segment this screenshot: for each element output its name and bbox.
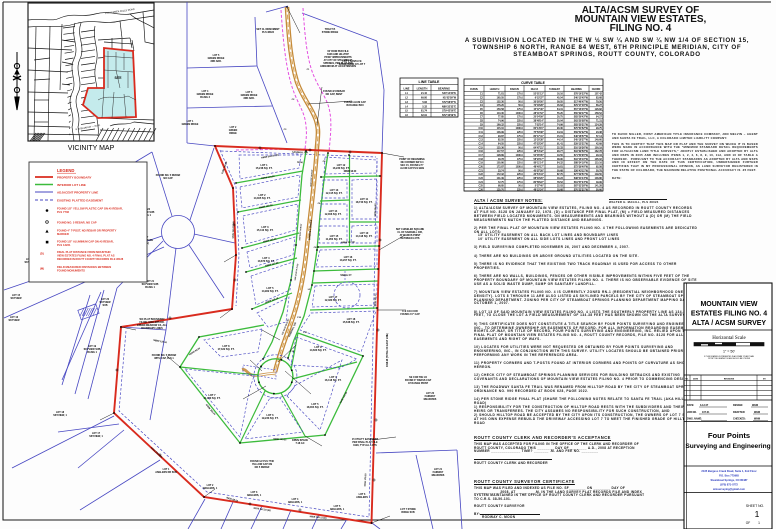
svg-text:21,480 SQ. FT.: 21,480 SQ. FT.	[204, 397, 221, 400]
svg-text:SABLE CT: SABLE CT	[340, 274, 352, 277]
svg-text:S57°16'45"W: S57°16'45"W	[574, 108, 589, 111]
svg-text:NO 5 REBAR: NO 5 REBAR	[255, 466, 270, 469]
svg-text:3RD ADD.: 3RD ADD.	[210, 60, 222, 63]
svg-text:FINAL PLAT DISTANCE FROM MOUNT: FINAL PLAT DISTANCE FROM MOUNTAIN	[57, 250, 110, 254]
svg-text:162.78: 162.78	[595, 151, 603, 153]
svg-text:172.32: 172.32	[497, 174, 505, 176]
svg-text:S77°29'51"W: S77°29'51"W	[574, 174, 589, 176]
svg-text:3-12-07: 3-12-07	[700, 404, 709, 407]
svg-text:136.99: 136.99	[497, 132, 505, 134]
svg-text:34.19: 34.19	[557, 131, 564, 134]
svg-text:N88E 150.21: N88E 150.21	[273, 439, 287, 442]
svg-text:C14: C14	[479, 143, 484, 146]
svg-text:C11: C11	[303, 332, 308, 334]
svg-text:S40E 132.00: S40E 132.00	[339, 391, 348, 404]
svg-text:S09°12'40"W 70.22': S09°12'40"W 70.22'	[294, 263, 300, 281]
svg-text:32.03: 32.03	[557, 186, 564, 188]
svg-text:45.63: 45.63	[557, 104, 564, 107]
svg-text:GREEN RIDGE: GREEN RIDGE	[182, 123, 199, 126]
svg-text:325.0: 325.0	[517, 144, 524, 146]
svg-text:18,004 SQ. FT.: 18,004 SQ. FT.	[307, 406, 324, 409]
svg-text:1030.0: 1030.0	[516, 167, 524, 169]
svg-text:15,648 SQ. FT.: 15,648 SQ. FT.	[343, 321, 360, 324]
svg-text:S02E 243.71 (M): S02E 243.71 (M)	[232, 221, 236, 238]
svg-text:LENGTH: LENGTH	[417, 86, 428, 90]
svg-text:44.14: 44.14	[557, 139, 564, 142]
svg-text:N82W 122.61: N82W 122.61	[263, 238, 278, 243]
svg-text:64°47'21": 64°47'21"	[533, 146, 543, 149]
svg-text:N88W 264.10 (D): N88W 264.10 (D)	[261, 153, 279, 159]
svg-text:45°57'26": 45°57'26"	[533, 169, 543, 172]
svg-text:225.0: 225.0	[517, 178, 524, 180]
svg-text:13,207 SQ. FT.: 13,207 SQ. FT.	[340, 259, 357, 262]
svg-text:DWG. NAME:: DWG. NAME:	[687, 418, 702, 421]
svg-text:ADJACENT PROPERTY LINE: ADJACENT PROPERTY LINE	[57, 191, 98, 195]
svg-text:C10: C10	[297, 317, 302, 319]
svg-text:N76W 110.18: N76W 110.18	[265, 297, 279, 304]
svg-text:92.58: 92.58	[596, 167, 603, 169]
svg-text:69.80: 69.80	[421, 96, 428, 99]
svg-text:42.69: 42.69	[596, 143, 603, 146]
svg-text:INTERIOR LOT LINE: INTERIOR LOT LINE	[57, 183, 86, 187]
svg-text:1030.0: 1030.0	[516, 128, 524, 130]
svg-text:52°35'35": 52°35'35"	[533, 155, 543, 157]
svg-text:5°27'40": 5°27'40"	[535, 185, 544, 188]
svg-text:135.70: 135.70	[497, 190, 505, 192]
svg-text:225.0: 225.0	[517, 132, 524, 134]
svg-text:71.31: 71.31	[596, 121, 603, 123]
svg-text:8128, TYP ALL LOTS: 8128, TYP ALL LOTS	[353, 444, 377, 447]
svg-text:13,870 SQ. FT.: 13,870 SQ. FT.	[258, 260, 275, 263]
svg-text:C23: C23	[479, 178, 484, 180]
svg-text:25°54'59": 25°54'59"	[533, 116, 543, 119]
svg-text:SKYVIEW, 1: SKYVIEW, 1	[89, 435, 103, 438]
svg-text:S72°08'37"E: S72°08'37"E	[442, 101, 456, 104]
svg-text:71.81: 71.81	[498, 94, 505, 96]
svg-text:FOUND 4" T-POST, NO REBAR OR P: FOUND 4" T-POST, NO REBAR OR PROPERTY	[57, 229, 117, 233]
svg-text:83.68: 83.68	[596, 98, 603, 100]
svg-text:128.89: 128.89	[497, 155, 505, 157]
svg-text:S40°14'20"E: S40°14'20"E	[442, 92, 456, 95]
svg-text:S72°39'40"W: S72°39'40"W	[574, 166, 589, 169]
svg-text:S30°43'11"W: S30°43'11"W	[574, 169, 589, 172]
svg-text:93.87: 93.87	[498, 136, 505, 138]
svg-text:LINE TABLE: LINE TABLE	[419, 80, 440, 84]
svg-text:Horizontal Scale: Horizontal Scale	[712, 336, 746, 341]
svg-text:30.78: 30.78	[498, 159, 505, 161]
svg-text:32.33: 32.33	[557, 147, 564, 149]
svg-text:7°52'14": 7°52'14"	[535, 123, 544, 126]
svg-text:21.10: 21.10	[421, 92, 428, 95]
svg-text:FILING 3: FILING 3	[200, 96, 210, 99]
svg-text:NO CAP, BENT: NO CAP, BENT	[326, 93, 343, 96]
svg-text:100.19: 100.19	[595, 147, 603, 149]
svg-text:C18: C18	[479, 159, 484, 161]
svg-text:12,480 SQ. FT.: 12,480 SQ. FT.	[325, 299, 342, 302]
svg-text:15,110 SQ. FT.: 15,110 SQ. FT.	[257, 229, 274, 232]
svg-text:90.30: 90.30	[557, 128, 564, 130]
svg-text:7.18 AC: 7.18 AC	[295, 442, 304, 445]
svg-text:40.23: 40.23	[557, 177, 564, 180]
svg-text:175.0: 175.0	[517, 136, 524, 138]
svg-text:5.32: 5.32	[422, 105, 427, 108]
svg-text:15°47'46": 15°47'46"	[533, 108, 543, 111]
svg-text:60.00: 60.00	[297, 162, 304, 165]
svg-text:LEGEND: LEGEND	[57, 168, 74, 173]
svg-text:80°11'14": 80°11'14"	[534, 162, 544, 165]
svg-text:2135 Burgess Creek Road, Suite: 2135 Burgess Creek Road, Suite 1, 2nd Fl…	[701, 469, 756, 473]
svg-text:SKYVIEW, 1: SKYVIEW, 1	[53, 414, 67, 417]
svg-text:94.27: 94.27	[596, 116, 603, 119]
svg-text:18,740 SQ. FT.: 18,740 SQ. FT.	[356, 201, 373, 204]
svg-text:32.91: 32.91	[421, 114, 428, 117]
svg-text:S01E 176.03: S01E 176.03	[365, 473, 368, 487]
svg-text:45.54: 45.54	[557, 97, 564, 100]
svg-text:S63°20'58"W: S63°20'58"W	[574, 121, 589, 123]
svg-text:C17: C17	[479, 155, 484, 157]
svg-text:S79°17'46"W: S79°17'46"W	[574, 104, 589, 107]
svg-text:165.55: 165.55	[497, 98, 505, 100]
svg-text:S70°54'52"W: S70°54'52"W	[574, 127, 589, 130]
svg-text:C26: C26	[479, 190, 484, 192]
svg-text:S71°50'35"W: S71°50'35"W	[574, 155, 589, 157]
svg-text:CURVE TABLE: CURVE TABLE	[521, 81, 546, 85]
svg-text:176.20: 176.20	[497, 105, 505, 107]
svg-text:ANGLERS DR SUB: ANGLERS DR SUB	[155, 471, 177, 474]
svg-text:C15: C15	[479, 147, 484, 149]
svg-text:64.55: 64.55	[498, 143, 505, 146]
svg-text:325.0: 325.0	[517, 121, 524, 123]
svg-text:12°20'38": 12°20'38"	[533, 140, 543, 142]
svg-text:STONE RIDGE: STONE RIDGE	[322, 31, 339, 34]
svg-text:S10°19'36"W: S10°19'36"W	[574, 147, 589, 149]
svg-text:SHEET NO.: SHEET NO.	[746, 504, 764, 508]
svg-text:S50°39'47"W: S50°39'47"W	[574, 112, 589, 115]
svg-text:DATE:: DATE:	[687, 404, 694, 407]
svg-text:SKYVIEW: SKYVIEW	[8, 319, 20, 322]
svg-text:LINE: LINE	[404, 86, 410, 90]
svg-text:149.60: 149.60	[595, 139, 603, 142]
svg-text:N83W 118.20: N83W 118.20	[261, 176, 276, 180]
svg-text:MOUNTAIN VIEW: MOUNTAIN VIEW	[700, 301, 757, 308]
svg-text:WHM: WHM	[754, 411, 760, 414]
svg-text:EXISTING PLATTED EASEMENT: EXISTING PLATTED EASEMENT	[57, 199, 103, 203]
svg-text:MARKER: MARKER	[57, 232, 69, 236]
svg-text:NO CAP: NO CAP	[163, 177, 173, 180]
svg-text:75°53'38": 75°53'38"	[533, 132, 543, 134]
svg-text:S78°16'33"W: S78°16'33"W	[574, 94, 589, 96]
svg-text:3RD ADD.: 3RD ADD.	[243, 97, 255, 100]
svg-text:107.42: 107.42	[595, 93, 603, 96]
svg-text:(970) 871-0772: (970) 871-0772	[720, 483, 738, 487]
svg-text:29.75: 29.75	[596, 128, 603, 130]
svg-text:225.0: 225.0	[517, 190, 524, 192]
svg-text:(D): (D)	[40, 252, 44, 256]
svg-text:OF: OF	[746, 521, 750, 525]
svg-text:15.01: 15.01	[557, 136, 564, 138]
svg-text:Steamboat Springs, CO 80487: Steamboat Springs, CO 80487	[711, 478, 748, 482]
svg-text:RADIUS: RADIUS	[510, 88, 519, 91]
svg-text:N85E 120.11 (D): N85E 120.11 (D)	[310, 516, 327, 520]
svg-text:ANGLERS, 1: ANGLERS, 1	[330, 508, 345, 511]
svg-text:FOUND MONUMENTS: FOUND MONUMENTS	[57, 269, 85, 273]
svg-text:WHM: WHM	[754, 418, 760, 421]
svg-text:28°41'53": 28°41'53"	[533, 112, 543, 115]
svg-text:17,322 SQ. FT.: 17,322 SQ. FT.	[218, 348, 235, 351]
svg-text:14,305 SQ. FT.: 14,305 SQ. FT.	[254, 197, 271, 200]
svg-text:S46°18'57"W: S46°18'57"W	[574, 135, 589, 138]
svg-text:72.75: 72.75	[498, 182, 505, 184]
svg-text:RIDGE SUB: RIDGE SUB	[401, 511, 415, 514]
svg-text:C25: C25	[479, 186, 484, 188]
svg-text:S38°44'44"W: S38°44'44"W	[574, 177, 589, 180]
svg-text:S00E 254.00: S00E 254.00	[374, 203, 377, 217]
svg-text:ALUM CAP PLS 9999: ALUM CAP PLS 9999	[400, 167, 425, 170]
svg-text:Four Points: Four Points	[708, 431, 750, 440]
svg-text:175.0: 175.0	[517, 117, 524, 119]
svg-text:S70°22'31"W: S70°22'31"W	[574, 190, 589, 192]
svg-text:TANGENT: TANGENT	[549, 88, 561, 91]
svg-text:C3: C3	[284, 129, 288, 131]
svg-text:57.14: 57.14	[596, 135, 603, 138]
svg-text:48°40'17": 48°40'17"	[533, 166, 543, 169]
svg-text:MEADOWS: MEADOWS	[424, 398, 437, 401]
svg-text:WHM: WHM	[752, 404, 758, 407]
svg-text:BEARING: BEARING	[571, 88, 582, 91]
svg-text:23.38: 23.38	[596, 132, 603, 134]
svg-text:52°51'13": 52°51'13"	[533, 94, 543, 96]
svg-text:225.0: 225.0	[517, 174, 524, 176]
svg-text:50.0: 50.0	[518, 186, 523, 188]
svg-text:48°15'24": 48°15'24"	[533, 189, 543, 192]
svg-text:FOUND 1/2" YELLOW PLASTIC CAP: FOUND 1/2" YELLOW PLASTIC CAP ON #5 REBA…	[57, 207, 123, 211]
svg-text:PLS 38024: PLS 38024	[262, 31, 275, 34]
svg-text:16.16: 16.16	[557, 94, 564, 96]
svg-text:S83°30'31"W: S83°30'31"W	[574, 124, 589, 126]
svg-text:30°50'50": 30°50'50"	[533, 101, 543, 103]
svg-text:59.55: 59.55	[557, 101, 564, 103]
svg-text:(M): (M)	[40, 267, 44, 271]
svg-text:SITE: SITE	[114, 76, 121, 80]
svg-text:20.04: 20.04	[557, 120, 564, 123]
svg-text:FILING 1: FILING 1	[145, 286, 155, 289]
svg-text:18.68: 18.68	[557, 190, 564, 192]
svg-text:PROPERTY BOUNDARY: PROPERTY BOUNDARY	[57, 176, 92, 180]
svg-text:C2: C2	[292, 99, 296, 101]
svg-text:73°18'28": 73°18'28"	[533, 105, 543, 107]
svg-text:91.41: 91.41	[557, 143, 564, 146]
svg-text:49.99: 49.99	[596, 181, 603, 184]
svg-text:CHORD: CHORD	[592, 89, 601, 91]
svg-text:152.30: 152.30	[497, 101, 505, 103]
svg-text:149.50: 149.50	[595, 173, 603, 176]
svg-text:158.52: 158.52	[595, 113, 603, 115]
svg-text:N89W 117.00: N89W 117.00	[341, 242, 355, 245]
svg-text:81.74: 81.74	[421, 110, 428, 113]
svg-text:24"X36" THE GRAPHIC SCALE SHOU: 24"X36" THE GRAPHIC SCALE SHOULD BE UTIL…	[708, 357, 751, 360]
svg-text:LENGTH: LENGTH	[490, 89, 500, 91]
svg-text:C20: C20	[479, 167, 484, 169]
svg-text:79.50: 79.50	[596, 101, 603, 103]
svg-text:S79°42'56"E: S79°42'56"E	[442, 110, 456, 113]
svg-text:14,962 SQ. FT.: 14,962 SQ. FT.	[262, 290, 279, 293]
svg-text:FIELD MEASURED DISTANCES BETWE: FIELD MEASURED DISTANCES BETWEEN	[57, 265, 111, 269]
svg-text:S16°16'10"W: S16°16'10"W	[574, 159, 589, 161]
svg-text:47°53'34": 47°53'34"	[533, 143, 543, 146]
svg-text:58°20'17": 58°20'17"	[533, 159, 543, 161]
svg-text:S16°39'59"W: S16°39'59"W	[574, 151, 589, 153]
svg-text:18°54'42": 18°54'42"	[533, 150, 543, 153]
svg-text:78.52: 78.52	[557, 182, 564, 184]
svg-text:66.27: 66.27	[596, 105, 603, 107]
svg-text:19,233 SQ. FT.: 19,233 SQ. FT.	[262, 417, 279, 420]
svg-text:98.85: 98.85	[498, 186, 505, 188]
svg-text:FOUND 2.5" CAP: FOUND 2.5" CAP	[400, 313, 420, 316]
svg-text:1030.0: 1030.0	[516, 113, 524, 115]
svg-text:50.78: 50.78	[596, 170, 603, 172]
svg-text:107-01: 107-01	[702, 411, 710, 414]
svg-text:1698.98 (TOTAL OF EAST LINE): 1698.98 (TOTAL OF EAST LINE)	[386, 333, 389, 367]
svg-text:CHECKED:: CHECKED:	[733, 418, 746, 421]
svg-text:1: 1	[755, 509, 760, 519]
svg-text:172.87: 172.87	[497, 167, 505, 169]
svg-text:33.74: 33.74	[498, 169, 505, 172]
svg-text:DELTA: DELTA	[531, 88, 539, 91]
svg-text:PLS 13221: PLS 13221	[57, 243, 71, 247]
svg-text:12,006 SQ. FT.: 12,006 SQ. FT.	[325, 213, 342, 216]
svg-text:16,118 SQ. FT.: 16,118 SQ. FT.	[325, 379, 342, 382]
svg-text:124.29: 124.29	[595, 123, 603, 126]
svg-text:ANGLERS, 1: ANGLERS, 1	[247, 494, 262, 497]
svg-text:5.82: 5.82	[422, 101, 427, 104]
svg-text:ANGLERS, 1: ANGLERS, 1	[288, 501, 303, 504]
svg-text:BETWEEN LOTS: BETWEEN LOTS	[401, 237, 420, 240]
svg-text:80°17'41": 80°17'41"	[533, 135, 543, 138]
svg-text:N89W 90.00: N89W 90.00	[344, 171, 357, 173]
svg-text:PLS 7736: PLS 7736	[57, 210, 69, 214]
svg-text:225.0: 225.0	[517, 151, 524, 153]
svg-text:84.32: 84.32	[557, 162, 564, 165]
svg-text:115.10: 115.10	[497, 128, 505, 130]
svg-text:S61°57'24"W: S61°57'24"W	[574, 181, 589, 184]
svg-text:110.30: 110.30	[497, 113, 505, 115]
svg-text:19.81: 19.81	[557, 167, 564, 169]
svg-text:RIDGE: RIDGE	[229, 132, 237, 135]
svg-text:38.90: 38.90	[557, 159, 564, 161]
svg-text:ANGLERS: ANGLERS	[356, 496, 368, 499]
svg-text:14,118 SQ. FT.: 14,118 SQ. FT.	[356, 235, 373, 238]
svg-text:90.77: 90.77	[557, 151, 564, 153]
svg-text:126.82: 126.82	[595, 109, 603, 111]
svg-text:CURVE: CURVE	[470, 89, 479, 91]
svg-text:30.75: 30.75	[557, 117, 564, 119]
svg-text:WITH CAP, PLS 1: WITH CAP, PLS 1	[154, 357, 174, 360]
svg-text:BOUNDARY LINES: BOUNDARY LINES	[141, 327, 163, 330]
svg-text:C12: C12	[479, 136, 484, 138]
svg-text:FOUND NO. 5 REBAR, NO CAP: FOUND NO. 5 REBAR, NO CAP	[57, 221, 97, 225]
svg-text:ANGLERS DR: ANGLERS DR	[150, 446, 163, 459]
svg-text:JOB NO.: JOB NO.	[687, 411, 697, 414]
svg-text:N72°43'09"E: N72°43'09"E	[442, 114, 456, 117]
svg-text:AT RANGE POINT: AT RANGE POINT	[408, 382, 429, 385]
svg-text:38°48'14": 38°48'14"	[533, 120, 543, 123]
svg-text:DRAFTED:: DRAFTED:	[733, 411, 745, 414]
svg-text:50.0: 50.0	[518, 105, 523, 107]
svg-text:S88°34'19"W: S88°34'19"W	[574, 162, 589, 165]
svg-text:1030.0: 1030.0	[516, 155, 524, 157]
svg-text:20°54'44": 20°54'44"	[533, 173, 543, 176]
svg-text:C13: C13	[479, 140, 484, 142]
svg-text:N86°32'32"E: N86°32'32"E	[442, 105, 456, 108]
svg-text:C1: C1	[307, 69, 311, 71]
svg-text:DESIGN:: DESIGN:	[733, 404, 743, 407]
svg-text:74.99: 74.99	[557, 123, 564, 126]
svg-text:SUB: SUB	[102, 304, 107, 307]
svg-text:50.66: 50.66	[596, 190, 603, 192]
svg-text:VIEW ESTATES FILING NO. 4 FINA: VIEW ESTATES FILING NO. 4 FINAL PLAT AS	[57, 254, 115, 258]
svg-text:175.0: 175.0	[517, 109, 524, 111]
svg-text:ESTATES FILING NO. 4: ESTATES FILING NO. 4	[691, 311, 767, 318]
svg-text:82.55: 82.55	[498, 140, 505, 142]
svg-text:C21: C21	[479, 170, 484, 172]
svg-text:43.50: 43.50	[557, 154, 564, 157]
svg-text:175.0: 175.0	[517, 159, 524, 161]
svg-text:15,248 SQ. FT.: 15,248 SQ. FT.	[256, 167, 273, 170]
svg-text:S17°46'47"W: S17°46'47"W	[574, 100, 589, 103]
svg-text:N1°53'59"W: N1°53'59"W	[443, 96, 457, 99]
svg-text:50.68: 50.68	[557, 170, 564, 172]
svg-text:C19: C19	[479, 163, 484, 165]
svg-text:P.O. Box 775965: P.O. Box 775965	[719, 474, 739, 478]
svg-text:6°15'37": 6°15'37"	[535, 98, 544, 100]
svg-text:60°14'15": 60°14'15"	[533, 127, 543, 130]
svg-text:175.0: 175.0	[517, 182, 524, 184]
svg-text:141.28: 141.28	[595, 185, 603, 188]
svg-text:C24: C24	[479, 181, 484, 184]
svg-text:S45°18'37"W: S45°18'37"W	[574, 139, 589, 142]
svg-text:115.16: 115.16	[595, 163, 603, 165]
svg-text:S40°15'45"W: S40°15'45"W	[574, 97, 589, 100]
svg-text:SKYVIEW: SKYVIEW	[10, 297, 22, 300]
svg-text:55.20: 55.20	[557, 113, 564, 115]
svg-text:225.0: 225.0	[517, 163, 524, 165]
svg-text:1" = 50': 1" = 50'	[723, 350, 735, 354]
svg-text:IN RANGE BOX: IN RANGE BOX	[346, 104, 364, 107]
svg-text:S83°29'43"W: S83°29'43"W	[574, 116, 589, 119]
svg-text:64.31: 64.31	[557, 108, 564, 111]
svg-text:74.96: 74.96	[498, 120, 505, 123]
svg-text:105.86: 105.86	[497, 163, 505, 165]
svg-text:S29°15'21"W: S29°15'21"W	[574, 144, 589, 146]
svg-text:VICINITY MAP: VICINITY MAP	[68, 145, 115, 152]
svg-text:1: 1	[758, 521, 760, 525]
svg-text:50.0: 50.0	[518, 147, 523, 149]
svg-text:80°58'22": 80°58'22"	[533, 182, 543, 184]
svg-text:29.34: 29.34	[596, 154, 603, 157]
svg-text:S59°52'32"W: S59°52'32"W	[574, 132, 589, 134]
svg-text:77.85: 77.85	[498, 117, 505, 119]
svg-text:105.02: 105.02	[595, 159, 603, 161]
svg-text:12,415 SQ. FT.: 12,415 SQ. FT.	[326, 192, 343, 195]
svg-text:FOUND 1/2" ALUMINUM CAP ON #5: FOUND 1/2" ALUMINUM CAP ON #5 REBAR,	[57, 240, 114, 244]
svg-text:87.70: 87.70	[557, 174, 564, 176]
svg-text:68°33'20": 68°33'20"	[533, 178, 543, 180]
svg-text:14,660 SQ. FT.: 14,660 SQ. FT.	[310, 349, 327, 352]
svg-text:S05°35'11"W 88.41': S05°35'11"W 88.41'	[298, 223, 303, 241]
svg-text:NO.: NO.	[685, 378, 689, 380]
svg-text:50.0: 50.0	[518, 101, 523, 103]
svg-text:DATE: DATE	[693, 377, 699, 380]
